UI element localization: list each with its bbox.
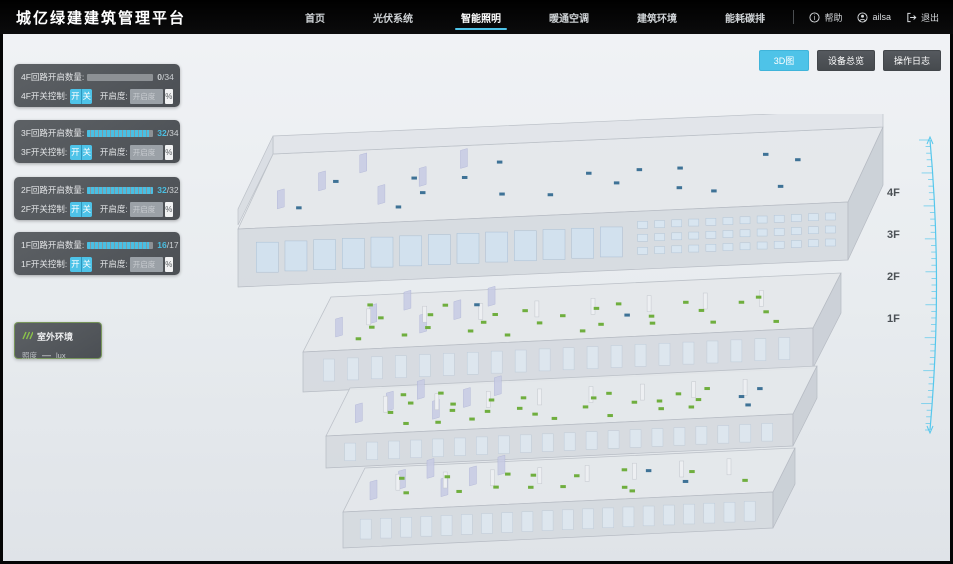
- help-button[interactable]: i 帮助: [809, 11, 842, 24]
- top-nav: 城亿绿建建筑管理平台 首页 光伏系统 智能照明 暖通空调 建筑环境 能耗碳排 i…: [0, 0, 953, 34]
- nav-divider: [793, 10, 794, 24]
- circuit-progress-bar: [87, 130, 153, 137]
- percent-apply-button[interactable]: %: [165, 145, 173, 160]
- floor-panel-2f: 2F回路开启数量: 32/32 2F开关控制: 开关 开启度: %: [14, 177, 180, 220]
- percent-apply-button[interactable]: %: [165, 202, 173, 217]
- dim-input[interactable]: [130, 145, 163, 160]
- help-icon: i: [809, 12, 820, 23]
- device-overview-button[interactable]: 设备总览: [817, 50, 875, 71]
- floor-on-button[interactable]: 开: [70, 145, 80, 160]
- circuit-count-value: 32/34: [157, 128, 178, 138]
- dim-label: 开启度:: [100, 203, 128, 215]
- dim-input[interactable]: [130, 202, 163, 217]
- switch-control-label: 1F开关控制:: [21, 258, 67, 270]
- circuit-count-label: 2F回路开启数量:: [21, 184, 84, 196]
- floor-panel-4f: 4F回路开启数量: 0/34 4F开关控制: 开关 开启度: %: [14, 64, 180, 107]
- nav-item-pv-system[interactable]: 光伏系统: [349, 0, 437, 34]
- floor-off-button[interactable]: 关: [82, 89, 92, 104]
- outdoor-env-title: 室外环境: [37, 330, 73, 343]
- floor-panel-1f: 1F回路开启数量: 16/17 1F开关控制: 开关 开启度: %: [14, 232, 180, 275]
- dim-label: 开启度:: [100, 90, 128, 102]
- nav-item-energy-carbon[interactable]: 能耗碳排: [701, 0, 789, 34]
- floor-on-button[interactable]: 开: [70, 257, 80, 272]
- outdoor-env-panel: 室外环境 照度 — lux: [14, 322, 102, 359]
- view-3d-button[interactable]: 3D图: [759, 50, 809, 71]
- circuit-progress-bar: [87, 187, 153, 194]
- app-window: 城亿绿建建筑管理平台 首页 光伏系统 智能照明 暖通空调 建筑环境 能耗碳排 i…: [0, 0, 953, 564]
- user-menu[interactable]: ailsa: [857, 12, 891, 23]
- svg-text:i: i: [814, 14, 816, 21]
- switch-control-label: 2F开关控制:: [21, 203, 67, 215]
- main-canvas: 3D图 设备总览 操作日志 4F回路开启数量: 0/34 4F开关控制: 开关 …: [3, 34, 950, 561]
- nav-item-smart-lighting[interactable]: 智能照明: [437, 0, 525, 34]
- illuminance-unit: lux: [56, 351, 66, 360]
- floor-panel-3f: 3F回路开启数量: 32/34 3F开关控制: 开关 开启度: %: [14, 120, 180, 163]
- sun-rays-icon: [22, 327, 33, 345]
- logout-button[interactable]: 退出: [906, 11, 939, 24]
- view-switcher: 3D图 设备总览 操作日志: [759, 50, 941, 71]
- dim-label: 开启度:: [100, 146, 128, 158]
- main-menu: 首页 光伏系统 智能照明 暖通空调 建筑环境 能耗碳排: [281, 0, 789, 34]
- dim-input[interactable]: [130, 257, 163, 272]
- floor-on-button[interactable]: 开: [70, 202, 80, 217]
- logout-icon: [906, 12, 917, 23]
- illuminance-label: 照度: [22, 350, 37, 361]
- nav-item-hvac[interactable]: 暖通空调: [525, 0, 613, 34]
- building-3d-view[interactable]: [208, 114, 898, 561]
- floor-off-button[interactable]: 关: [82, 145, 92, 160]
- user-avatar-icon: [857, 12, 868, 23]
- zoom-scale-ruler[interactable]: [908, 132, 950, 438]
- floor-on-button[interactable]: 开: [70, 89, 80, 104]
- username: ailsa: [872, 12, 891, 22]
- dim-label: 开启度:: [100, 258, 128, 270]
- nav-item-building-env[interactable]: 建筑环境: [613, 0, 701, 34]
- circuit-count-value: 32/32: [157, 185, 178, 195]
- circuit-count-label: 3F回路开启数量:: [21, 127, 84, 139]
- percent-apply-button[interactable]: %: [165, 89, 173, 104]
- circuit-count-value: 0/34: [157, 72, 174, 82]
- switch-control-label: 4F开关控制:: [21, 90, 67, 102]
- floor-off-button[interactable]: 关: [82, 257, 92, 272]
- nav-right: i 帮助 ailsa 退出: [793, 10, 953, 24]
- operation-log-button[interactable]: 操作日志: [883, 50, 941, 71]
- percent-apply-button[interactable]: %: [165, 257, 173, 272]
- floor-off-button[interactable]: 关: [82, 202, 92, 217]
- circuit-count-label: 4F回路开启数量:: [21, 71, 84, 83]
- nav-item-home[interactable]: 首页: [281, 0, 349, 34]
- app-title: 城亿绿建建筑管理平台: [0, 7, 186, 28]
- circuit-count-label: 1F回路开启数量:: [21, 239, 84, 251]
- illuminance-value: —: [42, 350, 51, 360]
- circuit-progress-bar: [87, 242, 153, 249]
- dim-input[interactable]: [130, 89, 163, 104]
- circuit-progress-bar: [87, 74, 153, 81]
- circuit-count-value: 16/17: [157, 240, 178, 250]
- switch-control-label: 3F开关控制:: [21, 146, 67, 158]
